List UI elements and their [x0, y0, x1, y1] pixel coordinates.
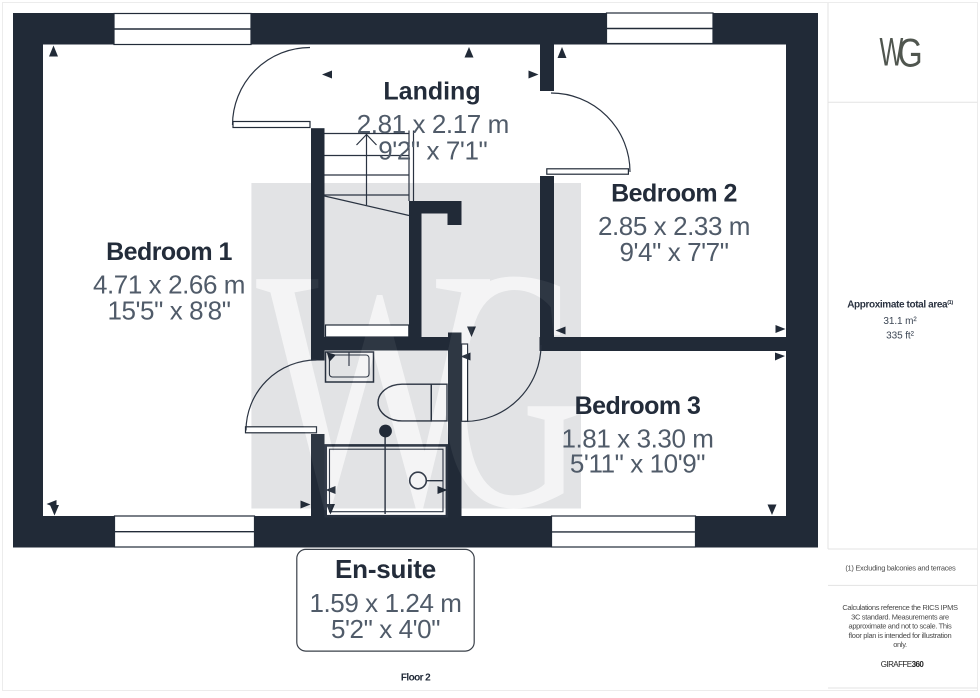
svg-text:15'5" x 8'8": 15'5" x 8'8" [107, 296, 230, 326]
svg-text:En-suite: En-suite [335, 554, 436, 584]
svg-text:GIRAFFE360: GIRAFFE360 [881, 660, 925, 669]
svg-text:only.: only. [893, 640, 907, 649]
svg-text:Bedroom 1: Bedroom 1 [106, 238, 232, 266]
svg-text:approximate and not to scale.: approximate and not to scale. This [849, 622, 953, 631]
svg-text:31.1 m²: 31.1 m² [883, 316, 917, 327]
svg-text:9'2" x 7'1": 9'2" x 7'1" [378, 136, 487, 166]
svg-text:(1) Excluding balconies and te: (1) Excluding balconies and terraces [845, 564, 956, 573]
svg-text:Approximate total area(1): Approximate total area(1) [847, 300, 953, 311]
svg-text:5'2" x 4'0": 5'2" x 4'0" [331, 614, 440, 644]
svg-text:Floor 2: Floor 2 [401, 673, 431, 684]
svg-text:3C standard. Measurements are: 3C standard. Measurements are [851, 612, 949, 621]
svg-text:G: G [898, 30, 923, 75]
svg-text:Bedroom 2: Bedroom 2 [611, 180, 737, 208]
svg-text:floor plan is intended for ill: floor plan is intended for illustration [849, 631, 952, 640]
svg-text:Calculations reference the RIC: Calculations reference the RICS IPMS [842, 603, 958, 612]
svg-text:335 ft²: 335 ft² [886, 331, 914, 342]
svg-text:9'4" x 7'7": 9'4" x 7'7" [619, 237, 728, 267]
svg-text:Bedroom 3: Bedroom 3 [575, 392, 701, 420]
svg-text:2.81 x 2.17 m: 2.81 x 2.17 m [357, 109, 509, 139]
svg-text:Landing: Landing [383, 78, 480, 106]
svg-text:5'11" x 10'9": 5'11" x 10'9" [570, 449, 705, 479]
